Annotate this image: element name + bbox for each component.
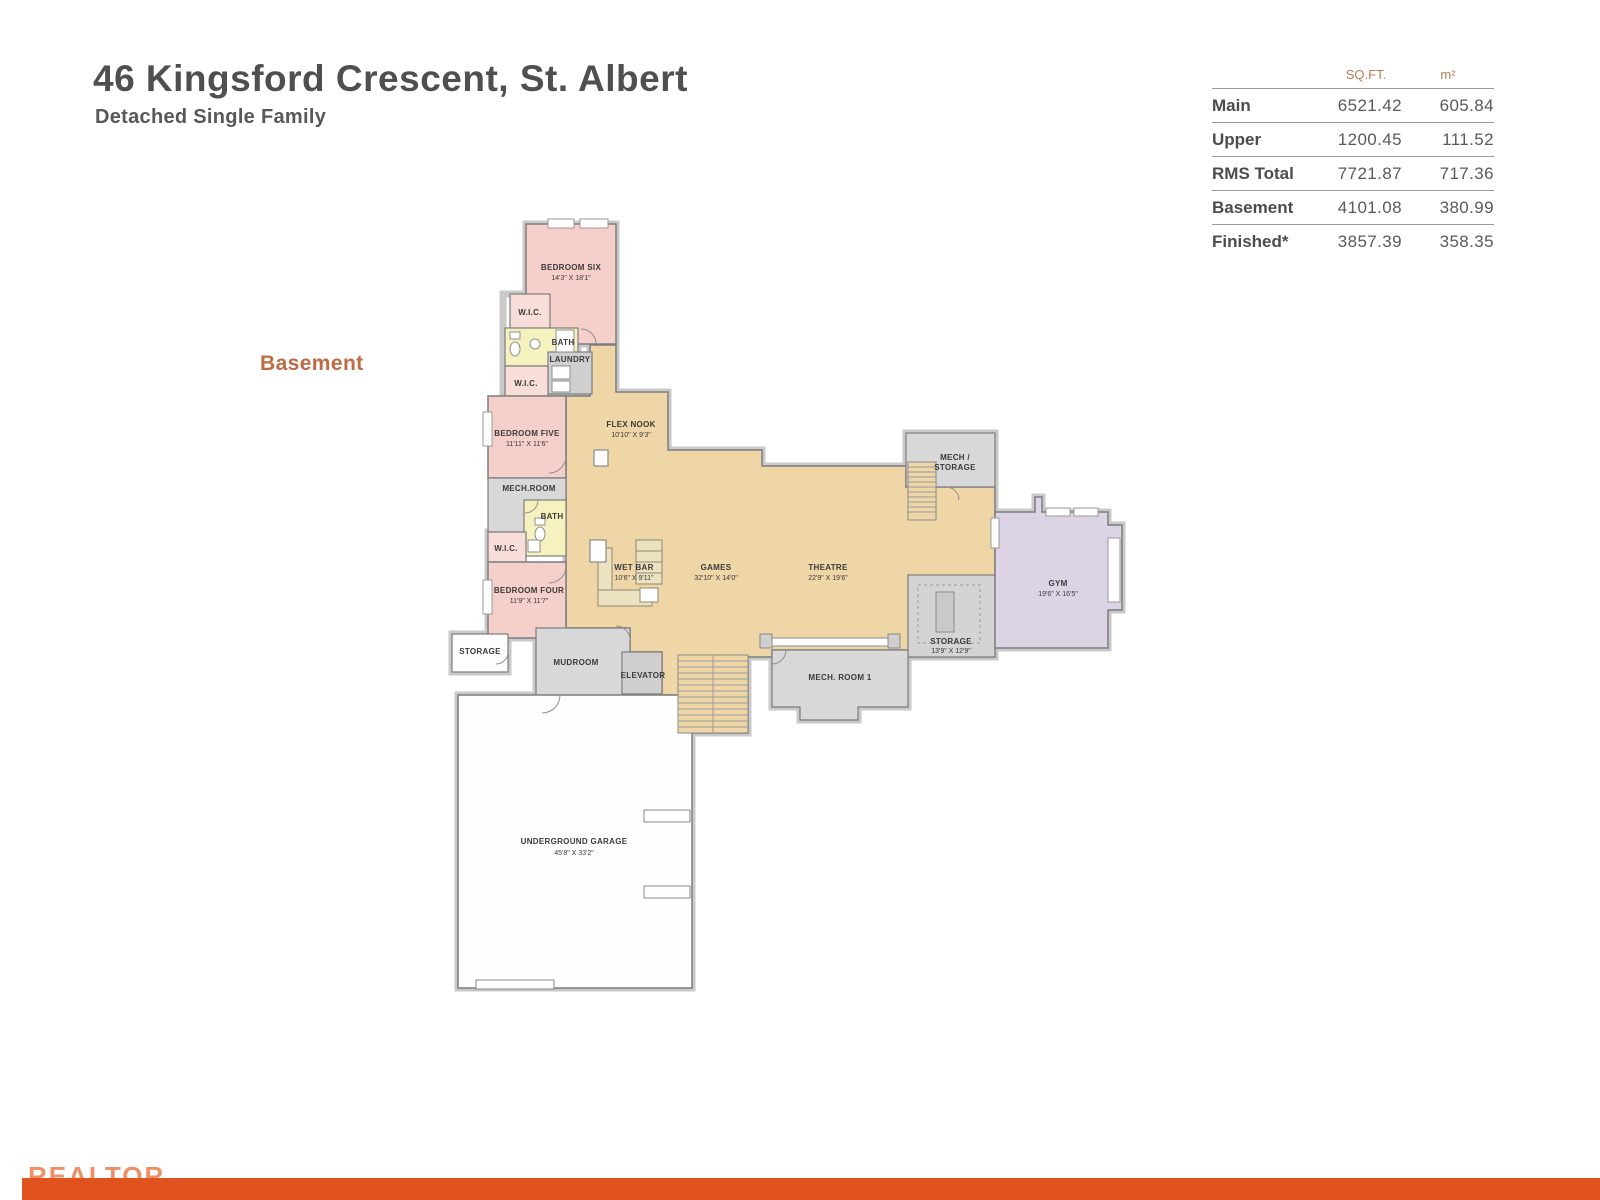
label-storage-left: STORAGE — [459, 647, 501, 656]
label-bedroom-five: BEDROOM FIVE — [494, 429, 560, 438]
room-gym — [995, 497, 1122, 648]
label-bath-upper: BATH — [552, 338, 575, 347]
label-mech-storage-2: STORAGE — [934, 463, 976, 472]
dims-wet-bar: 10'6" X 9'11" — [614, 575, 654, 582]
dims-bedroom-four: 11'9" X 11'7" — [510, 598, 549, 605]
label-mech-storage-1: MECH / — [940, 453, 970, 462]
label-bath-lower: BATH — [541, 512, 564, 521]
dims-theatre: 22'9" X 19'6" — [808, 575, 848, 582]
label-bedroom-six: BEDROOM SIX — [541, 263, 602, 272]
dims-games: 32'10" X 14'0" — [694, 575, 738, 582]
page: { "header": { "title": "46 Kingsford Cre… — [0, 0, 1600, 1200]
label-laundry: LAUNDRY — [550, 355, 591, 364]
label-bedroom-four: BEDROOM FOUR — [494, 586, 564, 595]
label-wet-bar: WET BAR — [614, 563, 653, 572]
footer-accent-bar — [22, 1178, 1600, 1200]
label-mudroom: MUDROOM — [553, 658, 598, 667]
label-storage-center: STORAGE — [930, 637, 972, 646]
label-elevator: ELEVATOR — [621, 671, 666, 680]
label-mech-room-1: MECH. ROOM 1 — [808, 673, 871, 682]
label-garage: UNDERGROUND GARAGE — [521, 837, 628, 846]
label-flex-nook: FLEX NOOK — [606, 420, 655, 429]
dims-bedroom-six: 14'3" X 18'1" — [551, 275, 591, 282]
dims-gym: 19'6" X 16'5" — [1038, 591, 1078, 598]
floor-plan: BEDROOM SIX 14'3" X 18'1" W.I.C. BATH LA… — [0, 0, 1600, 1200]
dims-bedroom-five: 11'11" X 11'6" — [506, 441, 548, 448]
dims-garage: 45'8" X 33'2" — [554, 850, 594, 857]
label-gym: GYM — [1048, 579, 1067, 588]
label-wic-lower: W.I.C. — [494, 544, 518, 553]
label-wic-upper: W.I.C. — [518, 308, 542, 317]
label-mech-room: MECH.ROOM — [502, 484, 555, 493]
staircase-upper — [908, 462, 936, 520]
label-theatre: THEATRE — [808, 563, 848, 572]
dims-flex-nook: 10'10" X 9'3" — [611, 432, 651, 439]
staircase-center — [678, 655, 748, 733]
dims-storage-center: 13'9" X 12'9" — [931, 648, 971, 655]
label-wic-mid: W.I.C. — [514, 379, 538, 388]
label-games: GAMES — [701, 563, 732, 572]
